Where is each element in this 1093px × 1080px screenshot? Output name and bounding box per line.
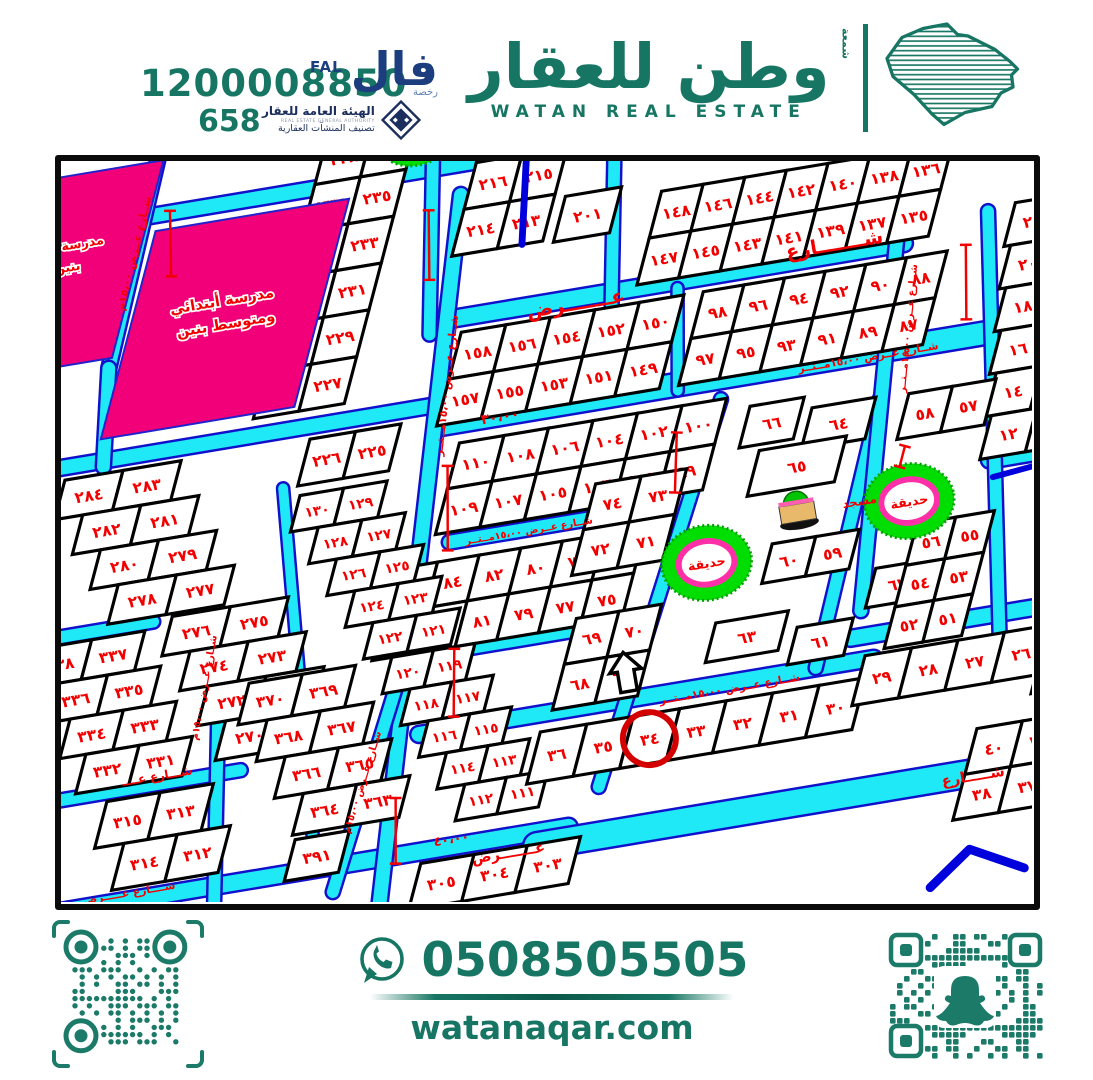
svg-text:٧٣: ٧٣ — [647, 485, 669, 507]
svg-text:٧١: ٧١ — [635, 531, 657, 553]
plat-map-panel: ٢٣٨٢٣٧٢٣٦٢٣٥٢٣٤٢٣٣٢٣٢٢٣١٢٣٠٢٢٩٢٢٨٢٢٧٢٢٦٢… — [55, 155, 1040, 910]
svg-text:٣٨: ٣٨ — [971, 783, 993, 805]
rega-diamond-icon — [381, 100, 421, 140]
svg-text:٦١: ٦١ — [809, 631, 831, 653]
svg-text:٨٤: ٨٤ — [441, 571, 463, 593]
svg-text:٧٩: ٧٩ — [513, 603, 535, 625]
svg-text:٢٨: ٢٨ — [917, 659, 939, 681]
website-url[interactable]: watanaqar.com — [352, 1008, 752, 1047]
svg-text:٥٤: ٥٤ — [909, 572, 931, 594]
svg-text:٥٧: ٥٧ — [957, 395, 979, 417]
rega-name-arabic: الهيئة العامة للعقار — [262, 105, 375, 119]
svg-text:١٢: ١٢ — [997, 423, 1019, 445]
rega-classification-label: تصنيف المنشآت العقارية — [262, 124, 375, 135]
svg-text:١٨: ١٨ — [1012, 295, 1032, 317]
svg-text:٥٨: ٥٨ — [914, 402, 936, 424]
whatsapp-icon — [355, 934, 409, 988]
footer-divider — [370, 994, 734, 1000]
qr-code-website[interactable] — [52, 918, 204, 1070]
svg-text:٣٥: ٣٥ — [592, 736, 614, 758]
svg-text:٦٩: ٦٩ — [581, 627, 603, 649]
svg-text:٣١: ٣١ — [778, 705, 800, 727]
svg-text:٨٢: ٨٢ — [483, 564, 505, 586]
fal-license-logo: FAL فال رخصة — [308, 46, 438, 98]
svg-text:٩٨: ٩٨ — [706, 301, 728, 323]
saudi-map-icon — [878, 18, 1028, 138]
svg-text:٩٦: ٩٦ — [747, 295, 769, 317]
svg-text:٩٣: ٩٣ — [775, 335, 797, 357]
svg-text:٧٤: ٧٤ — [601, 493, 623, 515]
svg-text:٦٠: ٦٠ — [778, 550, 800, 572]
svg-text:٨٩: ٨٩ — [857, 321, 879, 343]
svg-text:٩٥: ٩٥ — [735, 341, 757, 363]
svg-text:٦٨: ٦٨ — [569, 673, 591, 695]
svg-text:٣٣: ٣٣ — [685, 720, 707, 742]
svg-text:٩٤: ٩٤ — [788, 288, 810, 310]
svg-text:٧٢: ٧٢ — [589, 538, 611, 560]
svg-text:٧٥: ٧٥ — [596, 589, 618, 611]
svg-text:٢٠: ٢٠ — [1017, 253, 1032, 275]
contact-block: 0508505505 watanaqar.com — [352, 933, 752, 1047]
svg-text:٩٠: ٩٠ — [869, 274, 891, 296]
brand-divider-bar — [863, 24, 868, 132]
svg-text:٢٧: ٢٧ — [964, 651, 986, 673]
svg-text:٧٠: ٧٠ — [623, 620, 645, 642]
svg-text:٣٤: ٣٤ — [639, 728, 661, 750]
brand-vertical-text: شمعة — [840, 28, 853, 128]
license-number: 658 — [198, 104, 261, 139]
svg-text:٦٣: ٦٣ — [736, 626, 758, 648]
svg-text:٥٩: ٥٩ — [821, 542, 843, 564]
svg-text:٤٠: ٤٠ — [983, 737, 1005, 759]
whatsapp-number[interactable]: 0508505505 — [421, 933, 748, 988]
svg-text:٩٢: ٩٢ — [828, 281, 850, 303]
svg-text:٦٦: ٦٦ — [761, 412, 783, 434]
svg-text:٣٠: ٣٠ — [825, 697, 847, 719]
brand-english-wordmark: WATAN REAL ESTATE — [468, 102, 830, 122]
svg-text:٣٢: ٣٢ — [732, 713, 754, 735]
svg-text:٢٦: ٢٦ — [1010, 643, 1032, 665]
svg-text:٨١: ٨١ — [471, 610, 493, 632]
qr-code-snapchat[interactable] — [876, 920, 1054, 1072]
svg-text:٦٤: ٦٤ — [828, 413, 850, 435]
svg-text:٣٧: ٣٧ — [1016, 775, 1032, 797]
svg-text:١٦: ١٦ — [1007, 338, 1029, 360]
rega-authority-logo: الهيئة العامة للعقار REAL ESTATE GENERAL… — [262, 100, 421, 140]
plat-map-svg: ٢٣٨٢٣٧٢٣٦٢٣٥٢٣٤٢٣٣٢٣٢٢٣١٢٣٠٢٢٩٢٢٨٢٢٧٢٢٦٢… — [61, 161, 1032, 902]
svg-text:٥٥: ٥٥ — [959, 524, 981, 546]
svg-text:٥٢: ٥٢ — [898, 614, 920, 636]
real-estate-flyer: { "header": { "phone_top": "1200008850",… — [0, 0, 1093, 1080]
svg-text:٦٥: ٦٥ — [786, 456, 808, 478]
svg-text:٩١: ٩١ — [816, 328, 838, 350]
svg-text:٣٦: ٣٦ — [546, 744, 568, 766]
watan-brand-logo: وطن للعقار WATAN REAL ESTATE شمعة — [468, 18, 1028, 138]
svg-text:٢٩: ٢٩ — [871, 666, 893, 688]
svg-text:٩٧: ٩٧ — [694, 348, 716, 370]
svg-text:٥٣: ٥٣ — [948, 566, 970, 588]
fal-latin-label: FAL — [310, 60, 343, 75]
svg-text:٨٠: ٨٠ — [525, 557, 547, 579]
svg-text:٧٧: ٧٧ — [554, 596, 576, 618]
brand-arabic-wordmark: وطن للعقار — [468, 34, 830, 99]
svg-text:٥١: ٥١ — [937, 608, 959, 630]
svg-text:١٤: ١٤ — [1002, 381, 1024, 403]
